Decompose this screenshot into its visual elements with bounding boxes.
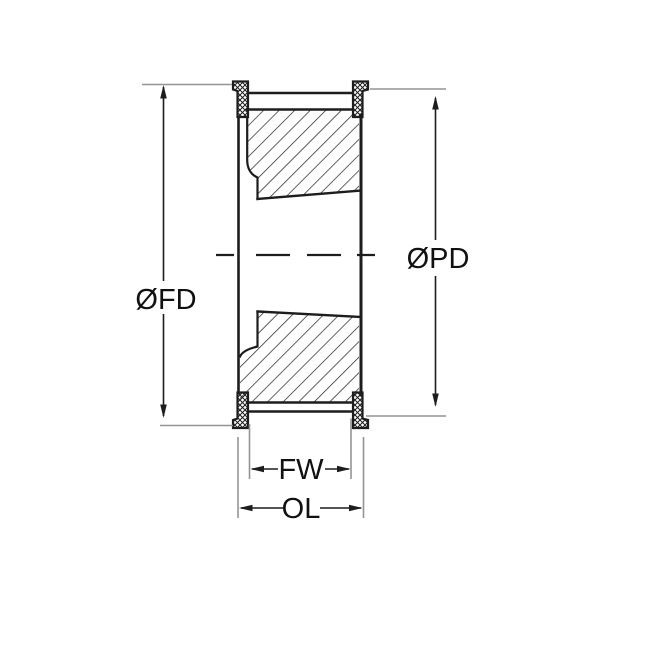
fd-label: ØFD xyxy=(135,284,196,316)
fw-arrow-left xyxy=(251,466,265,473)
flange-bottom-left xyxy=(233,393,248,429)
pulley-body-section xyxy=(239,93,362,412)
ol-arrow-right xyxy=(349,505,363,512)
flange-bottom-right xyxy=(353,393,368,429)
pd-label: ØPD xyxy=(407,243,470,275)
dimension-flange-diameter: ØFD xyxy=(135,85,196,418)
fw-label: FW xyxy=(278,454,324,486)
upper-body-hatch xyxy=(247,110,359,200)
dimension-pitch-diameter: ØPD xyxy=(407,96,470,407)
fw-arrow-right xyxy=(337,466,351,473)
dimension-overall-length: OL xyxy=(239,493,363,525)
ol-arrow-left xyxy=(239,505,253,512)
pulley-technical-drawing: ØFD ØPD FW OL xyxy=(0,0,670,670)
fd-arrow-up xyxy=(160,85,167,99)
pd-arrow-down xyxy=(432,394,439,408)
flange-top-left xyxy=(233,82,248,118)
drawing-svg: ØFD ØPD FW OL xyxy=(0,0,670,670)
flange-top-right xyxy=(353,82,368,118)
ol-label: OL xyxy=(282,493,321,525)
fd-arrow-down xyxy=(160,405,167,419)
dimension-face-width: FW xyxy=(251,454,351,486)
pd-arrow-up xyxy=(432,96,439,110)
